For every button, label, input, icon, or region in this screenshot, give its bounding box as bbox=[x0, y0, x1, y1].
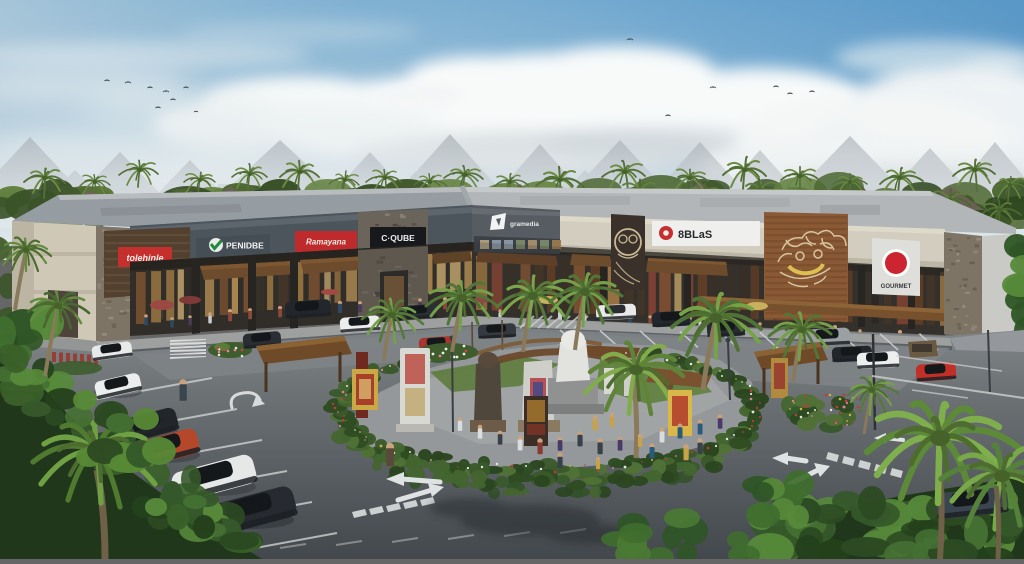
svg-text:8BLaS: 8BLaS bbox=[678, 229, 712, 241]
svg-text:Ramayana: Ramayana bbox=[306, 238, 347, 247]
svg-text:C·QUBE: C·QUBE bbox=[381, 233, 415, 243]
svg-text:PENIDBE: PENIDBE bbox=[226, 241, 264, 251]
svg-text:GOURMET: GOURMET bbox=[881, 284, 912, 290]
svg-text:gramedia: gramedia bbox=[510, 221, 539, 228]
